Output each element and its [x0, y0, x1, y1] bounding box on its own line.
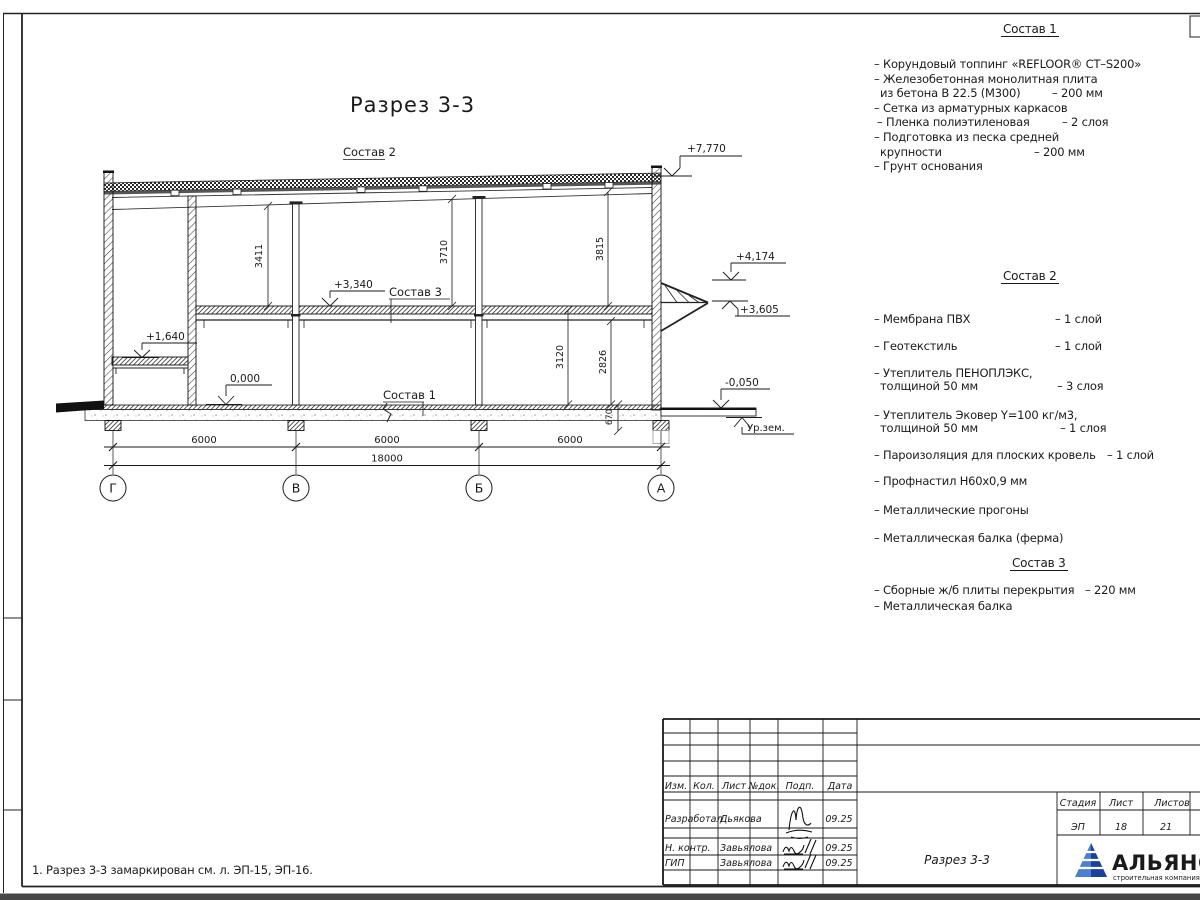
signature-0 — [786, 807, 812, 838]
axis-g: Г — [109, 481, 117, 496]
material-line: – Утеплитель Эковер Y=100 кг/м3, — [874, 408, 1077, 422]
dim-3411: 3411 — [254, 244, 265, 268]
dim-3710: 3710 — [439, 240, 450, 264]
material-value: – 2 слоя — [1062, 115, 1108, 129]
ground-level-label: Ур.зем. — [747, 423, 785, 434]
elev-roof: +7,770 — [687, 143, 726, 155]
company-logo: АЛЬЯНС строительная компания — [1075, 843, 1200, 882]
material-value: – 3 слоя — [1057, 379, 1103, 393]
material-line: из бетона В 22.5 (М300) — [880, 86, 1020, 100]
section-title: Разрез 3-3 — [350, 93, 475, 117]
floor-topping — [85, 405, 661, 410]
column-axis-b — [476, 199, 483, 406]
material-line: – Металлическая балка (ферма) — [874, 531, 1063, 545]
dim-3815: 3815 — [595, 237, 606, 261]
materials-list-1-title: Состав 1 — [1001, 22, 1059, 37]
logo-tagline: строительная компания — [1113, 874, 1200, 882]
sheet-value: 18 — [1115, 822, 1127, 833]
dim-bay-1: 6000 — [191, 435, 216, 446]
axis-b: Б — [475, 481, 484, 496]
material-line: – Подготовка из песка средней — [874, 130, 1059, 144]
row-date-2: 09.25 — [825, 858, 852, 869]
material-line: – Геотекстиль — [874, 339, 957, 353]
row-date-1: 09.25 — [825, 843, 852, 854]
dim-670: 670 — [605, 409, 615, 425]
material-line: – Профнастил Н60х0,9 мм — [874, 474, 1027, 488]
axis-bubbles: Г В Б А — [100, 475, 674, 501]
wall-axis-g — [104, 172, 113, 405]
elev-apron: -0,050 — [725, 377, 759, 389]
elev-floor2: +3,340 — [334, 279, 373, 291]
row-role-2: ГИП — [665, 858, 685, 869]
canopy-truss — [661, 283, 708, 331]
slab-beam-ends — [204, 320, 644, 328]
axis-a: А — [657, 481, 666, 496]
row-name-2: Завьялова — [720, 858, 772, 869]
material-value: – 1 слой — [1107, 448, 1154, 462]
material-line: – Металлические прогоны — [874, 503, 1029, 517]
parapet-cap-left — [103, 171, 114, 174]
row-name-0: Дьякова — [719, 814, 762, 825]
scan-edge-strip — [0, 894, 1200, 900]
column-axis-v — [293, 204, 300, 405]
row-name-1: Завьялова — [720, 843, 772, 854]
elev-canopy-top: +4,174 — [736, 251, 775, 263]
mezzanine-slab — [112, 357, 188, 365]
column-base-b — [474, 314, 484, 317]
material-value: – 200 мм — [1052, 86, 1103, 100]
elev-mezzanine: +1,640 — [146, 331, 185, 343]
dim-2826: 2826 — [598, 350, 609, 374]
parapet-cap-right — [651, 166, 662, 169]
material-line: – Грунт основания — [874, 159, 983, 173]
section-drawing: Разрез 3-3 — [56, 93, 794, 501]
logo-name: АЛЬЯНС — [1112, 851, 1200, 875]
interior-wall — [188, 196, 196, 405]
stamp-doc-title: Разрез 3-3 — [924, 853, 990, 867]
material-line: – Железобетонная монолитная плита — [874, 72, 1097, 86]
col-kol: Кол. — [693, 781, 715, 792]
column-base-v — [291, 314, 301, 317]
elev-zero: 0,000 — [230, 373, 260, 385]
col-data: Дата — [827, 781, 853, 792]
material-line: крупности — [880, 145, 942, 159]
signature-2 — [783, 854, 816, 869]
material-line: – Мембрана ПВХ — [874, 312, 970, 326]
material-line: – Пароизоляция для плоских кровель — [874, 448, 1096, 462]
row-date-0: 09.25 — [825, 814, 852, 825]
sheets-value: 21 — [1160, 822, 1172, 833]
left-margin-boxes — [3, 618, 22, 810]
label-sostav1: Состав 1 — [383, 388, 436, 402]
col-list: Лист — [721, 781, 747, 792]
stage-value: ЭП — [1070, 822, 1085, 833]
material-line: – Сетка из арматурных каркасов — [874, 101, 1067, 115]
bottom-dim-texts: 6000 6000 6000 18000 — [191, 435, 582, 465]
col-podp: Подп. — [786, 781, 815, 792]
material-line: толщиной 50 мм — [880, 421, 978, 435]
sheet-note: 1. Разрез 3-3 замаркирован см. л. ЭП-15,… — [32, 863, 313, 877]
material-line: – Корундовый топпинг «REFLOOR® CT–S200» — [874, 57, 1141, 71]
axis-v: В — [292, 481, 301, 496]
floor-base — [85, 410, 661, 421]
material-value: – 220 мм — [1085, 583, 1136, 597]
material-value: – 1 слой — [1055, 312, 1102, 326]
dim-bay-3: 6000 — [557, 435, 582, 446]
material-line: – Сборные ж/б плиты перекрытия — [874, 583, 1074, 597]
dim-bay-2: 6000 — [374, 435, 399, 446]
material-line: – Металлическая балка — [874, 599, 1012, 613]
label-sostav3: Состав 3 — [389, 285, 442, 299]
sheets-label: Листов — [1153, 798, 1190, 809]
row-role-1: Н. контр. — [665, 843, 711, 854]
sheet-label: Лист — [1108, 798, 1134, 809]
material-line: – Утеплитель ПЕНОПЛЭКС, — [874, 366, 1032, 380]
col-ndok: №док. — [747, 781, 779, 792]
materials-list-3-title: Состав 3 — [1010, 556, 1068, 571]
title-block: Изм. Кол. Лист №док. Подп. Дата Разработ… — [663, 719, 1200, 885]
corner-box — [1190, 16, 1200, 37]
dim-3120: 3120 — [555, 345, 566, 369]
materials-list-2-title: Состав 2 — [1001, 269, 1059, 284]
mezzanine-beam — [113, 368, 188, 374]
wall-axis-a — [652, 167, 661, 410]
dim-total: 18000 — [371, 454, 403, 465]
drawing-sheet: Разрез 3-3 — [0, 0, 1200, 900]
elevation-marks — [122, 156, 794, 434]
material-line: – Пленка полиэтиленовая — [877, 115, 1030, 129]
material-value: – 1 слоя — [1060, 421, 1106, 435]
row-role-0: Разработал — [665, 814, 723, 825]
stage-label: Стадия — [1060, 798, 1097, 809]
elev-canopy-bottom: +3,605 — [740, 304, 779, 316]
signature-1 — [783, 839, 816, 854]
label-sostav2: Состав 2 — [343, 145, 396, 159]
material-value: – 200 мм — [1034, 145, 1085, 159]
col-izm: Изм. — [665, 781, 687, 792]
material-line: толщиной 50 мм — [880, 379, 978, 393]
material-value: – 1 слой — [1055, 339, 1102, 353]
